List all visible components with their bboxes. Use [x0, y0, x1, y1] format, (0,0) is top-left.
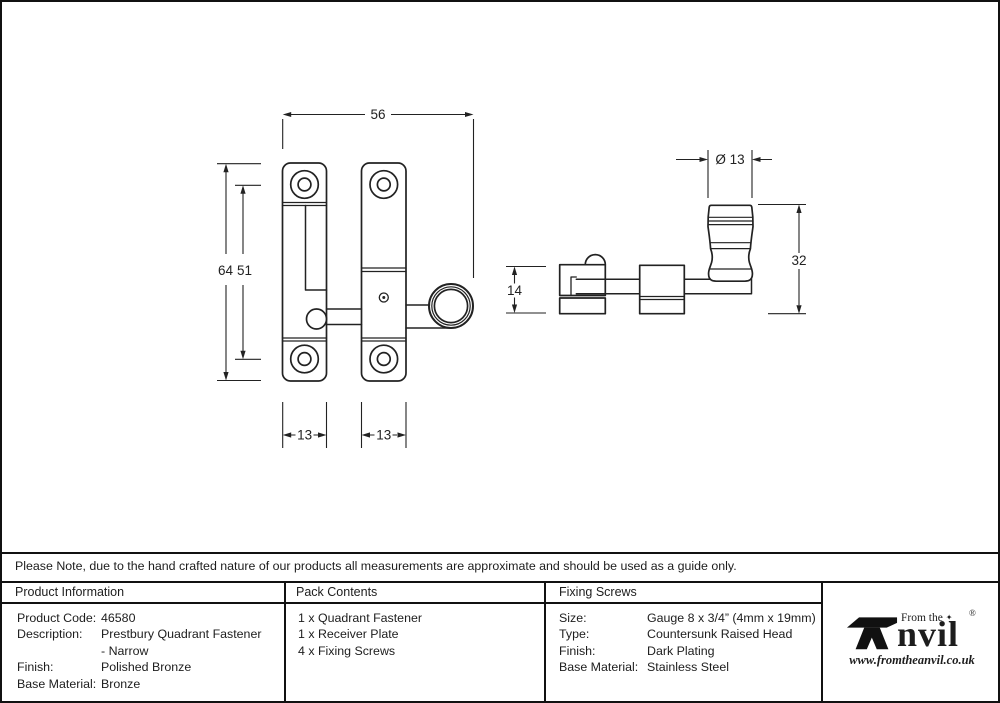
row-value: Polished Bronze [101, 660, 191, 674]
dim-hole-spacing: 51 [237, 263, 252, 278]
row-value: Countersunk Raised Head [647, 627, 792, 641]
receiver-plate [283, 163, 327, 381]
fastener-block [640, 265, 685, 313]
brand-logo-cell: From the ✦ nvil ® www.fromtheanvil.co.uk [823, 583, 998, 701]
row-label: Base Material: [559, 659, 647, 675]
row-value: Prestbury Quadrant Fastener [101, 627, 261, 641]
table-row: Base Material:Stainless Steel [559, 659, 821, 675]
product-information-header: Product Information [2, 583, 286, 604]
row-label: Base Material: [17, 676, 101, 692]
side-view [560, 205, 753, 313]
row-label: Description: [17, 626, 101, 642]
front-view [283, 163, 474, 381]
registered-trademark-icon: ® [969, 608, 976, 618]
logo-brand-text: nvil [897, 616, 959, 652]
pack-item: 1 x Receiver Plate [298, 626, 544, 642]
dim-knob-height: 32 [791, 253, 806, 268]
latch-pin [307, 309, 327, 329]
table-row: Product Code:46580 [17, 610, 284, 626]
fixing-screws-body: Size:Gauge 8 x 3/4” (4mm x 19mm) Type:Co… [546, 604, 823, 701]
quadrant-plate [362, 163, 407, 381]
row-label: Finish: [17, 659, 101, 675]
product-spec-sheet: 56 64 51 13 13 [0, 0, 1000, 703]
row-value: - Narrow [101, 644, 149, 658]
anvil-icon [845, 613, 899, 651]
row-label: Product Code: [17, 610, 101, 626]
table-row: Base Material:Bronze [17, 676, 284, 692]
receiver-bracket [560, 255, 606, 314]
pack-item: 4 x Fixing Screws [298, 643, 544, 659]
logo-website: www.fromtheanvil.co.uk [845, 653, 979, 668]
turn-knob [708, 205, 753, 281]
table-row: Size:Gauge 8 x 3/4” (4mm x 19mm) [559, 610, 821, 626]
dim-right-plate-width: 13 [376, 428, 391, 443]
row-value: Stainless Steel [647, 660, 729, 674]
row-value: Dark Plating [647, 644, 715, 658]
dim-knob-diameter: Ø 13 [715, 152, 744, 167]
row-label: Type: [559, 626, 647, 642]
table-row: Description:Prestbury Quadrant Fastener [17, 626, 284, 642]
row-value: Gauge 8 x 3/4” (4mm x 19mm) [647, 611, 816, 625]
product-information-body: Product Code:46580 Description:Prestbury… [2, 604, 286, 701]
measurement-note: Please Note, due to the hand crafted nat… [2, 552, 998, 583]
anvil-logo: From the ✦ nvil ® www.fromtheanvil.co.uk [845, 601, 985, 673]
table-row: Type:Countersunk Raised Head [559, 626, 821, 642]
technical-drawing: 56 64 51 13 13 [2, 2, 997, 552]
pack-item: 1 x Quadrant Fastener [298, 610, 544, 626]
crossbar-and-pin [307, 309, 362, 329]
table-row: Finish:Polished Bronze [17, 659, 284, 675]
row-value: Bronze [101, 677, 140, 691]
dim-overall-width: 56 [370, 107, 385, 122]
pack-contents-header: Pack Contents [286, 583, 546, 604]
front-view-dimensions: 56 64 51 13 13 [217, 107, 474, 448]
spec-table: Product Information Pack Contents Fixing… [2, 583, 998, 701]
row-label: Size: [559, 610, 647, 626]
table-row: Finish:Dark Plating [559, 643, 821, 659]
fixing-screws-header: Fixing Screws [546, 583, 823, 604]
row-label: Finish: [559, 643, 647, 659]
ring-handle [406, 284, 473, 328]
pack-contents-body: 1 x Quadrant Fastener 1 x Receiver Plate… [286, 604, 546, 701]
dim-plate-depth: 14 [507, 283, 523, 298]
dim-overall-height: 64 [218, 263, 234, 278]
dim-left-plate-width: 13 [297, 428, 312, 443]
row-value: 46580 [101, 611, 135, 625]
table-row: - Narrow [17, 643, 284, 659]
